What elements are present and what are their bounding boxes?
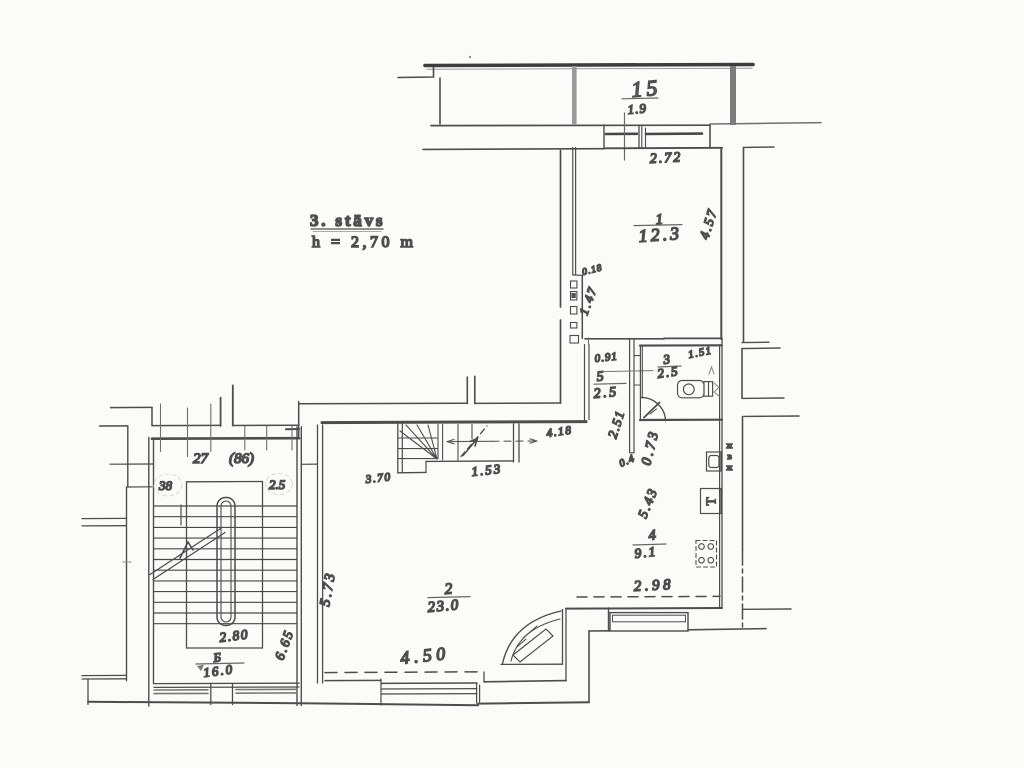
svg-text:1.53: 1.53 — [471, 461, 503, 479]
svg-text:2.72: 2.72 — [649, 150, 682, 167]
svg-text:(86): (86) — [229, 451, 254, 467]
svg-text:2.5: 2.5 — [593, 385, 619, 402]
svg-text:1.9: 1.9 — [627, 100, 647, 117]
svg-text:2.5: 2.5 — [656, 363, 680, 381]
svg-text:Ж: Ж — [727, 465, 733, 472]
svg-text:В: В — [728, 454, 733, 461]
svg-text:12.3: 12.3 — [638, 223, 683, 246]
svg-text:0.91: 0.91 — [594, 351, 618, 365]
svg-text:27: 27 — [193, 451, 210, 467]
svg-text:T: T — [704, 497, 719, 506]
svg-text:23.0: 23.0 — [427, 597, 461, 616]
svg-text:2.98: 2.98 — [633, 577, 674, 595]
svg-text:9.1: 9.1 — [634, 544, 658, 561]
svg-text:2.5: 2.5 — [269, 477, 286, 492]
svg-text:h = 2,70 m: h = 2,70 m — [312, 234, 416, 251]
svg-text:Ж: Ж — [727, 443, 733, 450]
svg-text:3. stāvs: 3. stāvs — [310, 211, 385, 230]
svg-text:38: 38 — [158, 478, 173, 493]
